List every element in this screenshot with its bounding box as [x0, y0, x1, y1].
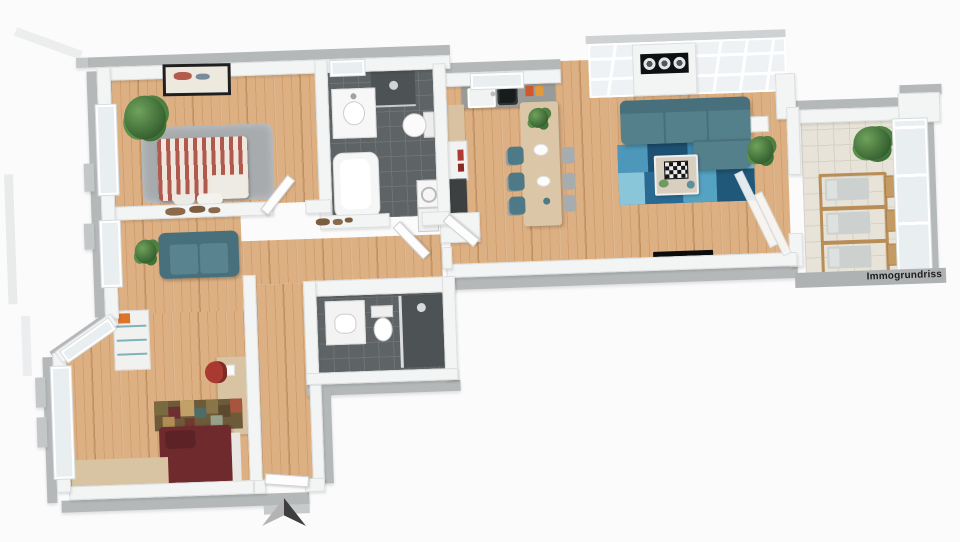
neighbour-wall-artifact [4, 174, 18, 304]
bathroom-vanity [325, 300, 367, 345]
faucet-icon [350, 93, 356, 99]
shelf-divider [117, 339, 147, 342]
exterior-wall-band [76, 58, 88, 68]
bowl [536, 175, 550, 186]
plant-sprig [659, 179, 669, 187]
balcony-glass-railing [893, 118, 932, 275]
chair-headrest [827, 180, 838, 198]
world-map-decal [333, 219, 343, 225]
sofa-seam [706, 111, 709, 142]
washing-machine [416, 179, 438, 208]
shelf-divider [116, 325, 146, 328]
wall-stub [305, 199, 331, 214]
spice-rack [525, 86, 533, 96]
neighbour-wall-artifact [21, 316, 32, 376]
red-appliance [457, 149, 463, 160]
world-map-decal [345, 217, 353, 222]
sectional-sofa [620, 96, 751, 145]
art-circle [673, 57, 685, 69]
patch [206, 399, 218, 413]
sink-basin [343, 101, 366, 126]
dining-chair-back [562, 173, 576, 190]
patch [194, 408, 206, 418]
patch [230, 398, 242, 412]
window-sill-block [35, 377, 46, 407]
shower-head-icon [417, 303, 426, 312]
bookshelf [113, 310, 151, 371]
sofa-chaise [693, 138, 752, 170]
wall-living-balcony-upper [786, 107, 801, 175]
window [471, 72, 523, 89]
mattress-edge [231, 432, 242, 482]
shower-area [398, 294, 445, 368]
dining-chair-teal [507, 146, 524, 165]
watermark-label: Immogrundriss [822, 269, 942, 284]
window [100, 221, 122, 288]
kitchen-island-table [520, 101, 562, 226]
art-circle [643, 58, 655, 70]
lounge-chair [818, 172, 887, 210]
window [51, 366, 75, 479]
chair-headrest [829, 248, 840, 266]
chair-headrest [828, 214, 839, 232]
bowl [533, 144, 548, 157]
shower-head-icon [389, 81, 398, 90]
bathtub-basin [340, 159, 372, 210]
sofa-cushion [200, 243, 229, 274]
wall-bathroom1-south [320, 213, 390, 229]
framed-picture [163, 63, 232, 96]
dining-chair-teal [509, 196, 526, 215]
window [96, 105, 119, 196]
world-map-decal [316, 218, 330, 225]
lounge-chair [820, 206, 889, 244]
neighbour-wall-artifact [14, 27, 83, 59]
washer-door [421, 186, 438, 203]
rug-patch [618, 172, 645, 205]
chess-board [664, 161, 689, 180]
bed-pillow [165, 430, 196, 449]
cup [687, 180, 695, 188]
dining-chair-back [561, 147, 575, 164]
toilet [402, 110, 433, 139]
patch [180, 400, 195, 416]
wall-stub [442, 247, 453, 269]
shelf-divider [117, 353, 147, 356]
spice-rack [535, 86, 543, 96]
dining-chair-back [563, 195, 577, 212]
picture-detail [196, 74, 210, 80]
floorplan-canvas: Immogrundriss [0, 0, 960, 542]
window [330, 60, 365, 76]
dining-chair-teal [508, 172, 525, 191]
wall-art-circles [640, 53, 689, 75]
coffee-table [654, 154, 699, 196]
window-sill-block [36, 417, 47, 447]
side-table [750, 116, 769, 133]
patch [154, 401, 168, 415]
bed-double-red [159, 425, 233, 487]
world-map-decal [208, 207, 220, 213]
loveseat-sofa [158, 230, 240, 279]
rug-patch [617, 144, 648, 173]
red-appliance [458, 163, 464, 171]
art-circle [658, 57, 670, 69]
window-sill-block [84, 163, 95, 191]
window-sill-block [84, 223, 95, 249]
bathroom-vanity [331, 88, 377, 140]
toilet-bowl [373, 317, 393, 342]
sofa-seam [663, 112, 666, 143]
toilet-tank [371, 305, 393, 318]
table-plant-icon [528, 108, 549, 129]
world-map-decal [165, 207, 185, 216]
sofa-cushion [170, 244, 199, 275]
refrigerator [447, 140, 468, 181]
desk-chair-red [205, 361, 228, 384]
cup [543, 198, 550, 205]
sink-basin [334, 313, 357, 334]
wall-bathroom2-east [442, 276, 459, 380]
bathtub [332, 151, 380, 219]
floorplan-3d-render: Immogrundriss [0, 0, 960, 542]
door-leaf-entry [264, 473, 309, 487]
orange-box [118, 313, 130, 323]
toilet [369, 305, 394, 344]
shower-area [371, 68, 416, 108]
north-arrow-icon [262, 498, 306, 526]
world-map-decal [189, 206, 205, 214]
picture-detail [174, 72, 192, 80]
